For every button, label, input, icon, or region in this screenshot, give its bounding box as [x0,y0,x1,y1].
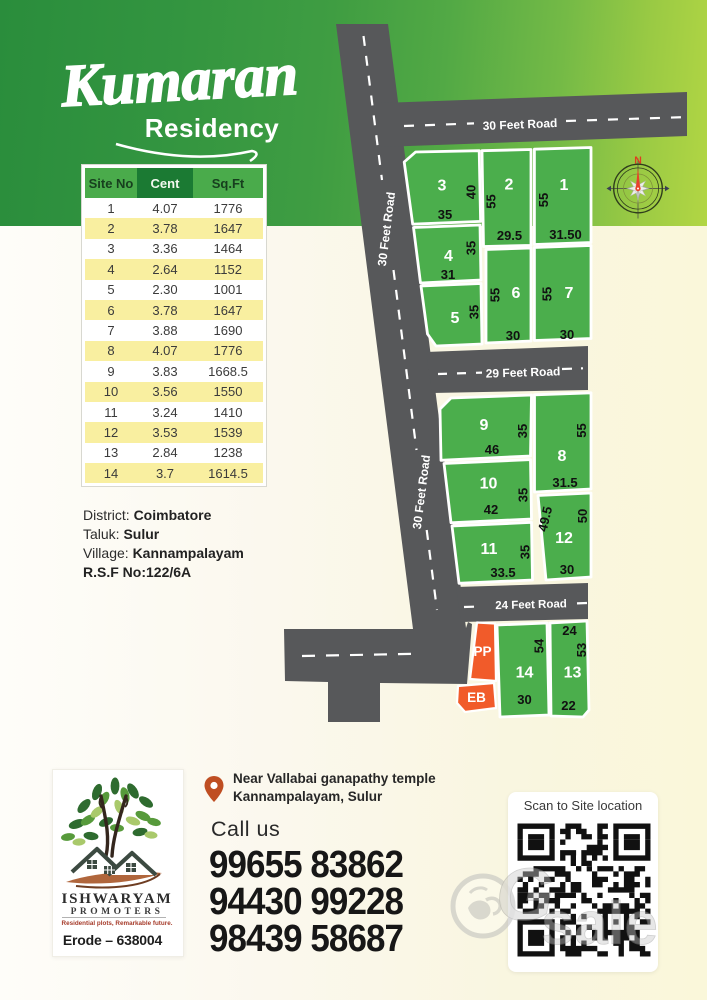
svg-text:6: 6 [512,285,521,302]
svg-text:35: 35 [467,305,482,319]
svg-text:7: 7 [565,285,574,302]
svg-text:35: 35 [464,241,479,255]
svg-text:22: 22 [561,698,575,713]
svg-text:10: 10 [480,476,498,493]
svg-text:42: 42 [484,502,498,517]
svg-text:40: 40 [464,185,479,199]
svg-text:Kumaran: Kumaran [59,41,300,119]
svg-text:30 Feet Road: 30 Feet Road [482,116,557,133]
svg-text:3: 3 [438,178,447,195]
svg-text:50: 50 [575,509,590,523]
svg-text:35: 35 [518,545,533,559]
svg-text:24 Feet Road: 24 Feet Road [495,598,567,612]
svg-text:55: 55 [484,194,499,208]
svg-text:24: 24 [562,623,577,638]
svg-text:35: 35 [515,424,530,438]
svg-text:53: 53 [574,643,589,657]
svg-text:EB: EB [467,690,486,705]
svg-text:30: 30 [517,692,531,707]
svg-text:8: 8 [558,448,567,465]
svg-text:PP: PP [473,644,491,659]
svg-text:N: N [634,155,642,167]
svg-text:30: 30 [506,328,520,343]
svg-text:30: 30 [560,327,574,342]
svg-text:14: 14 [516,665,534,682]
svg-text:33.5: 33.5 [490,565,515,580]
svg-text:1: 1 [560,177,569,194]
svg-text:35: 35 [516,488,531,502]
svg-text:55: 55 [536,193,551,207]
svg-text:5: 5 [451,310,460,327]
svg-text:46: 46 [485,442,499,457]
svg-text:29.5: 29.5 [497,228,522,243]
svg-text:2: 2 [505,177,514,194]
svg-text:sale: sale [541,890,658,957]
svg-text:30: 30 [560,562,574,577]
svg-text:31: 31 [441,267,455,282]
svg-text:Residency: Residency [145,113,280,143]
svg-text:12: 12 [555,530,573,547]
svg-text:55: 55 [540,287,555,301]
svg-text:55: 55 [574,423,589,437]
svg-text:35: 35 [438,207,452,222]
svg-text:54: 54 [532,638,547,653]
svg-text:31.50: 31.50 [549,227,582,242]
svg-text:9: 9 [480,417,489,434]
svg-text:29 Feet Road: 29 Feet Road [485,364,560,380]
svg-text:31.5: 31.5 [552,475,577,490]
svg-text:55: 55 [488,288,503,302]
svg-text:13: 13 [564,665,582,682]
svg-text:4: 4 [444,248,453,265]
svg-text:11: 11 [481,541,498,558]
